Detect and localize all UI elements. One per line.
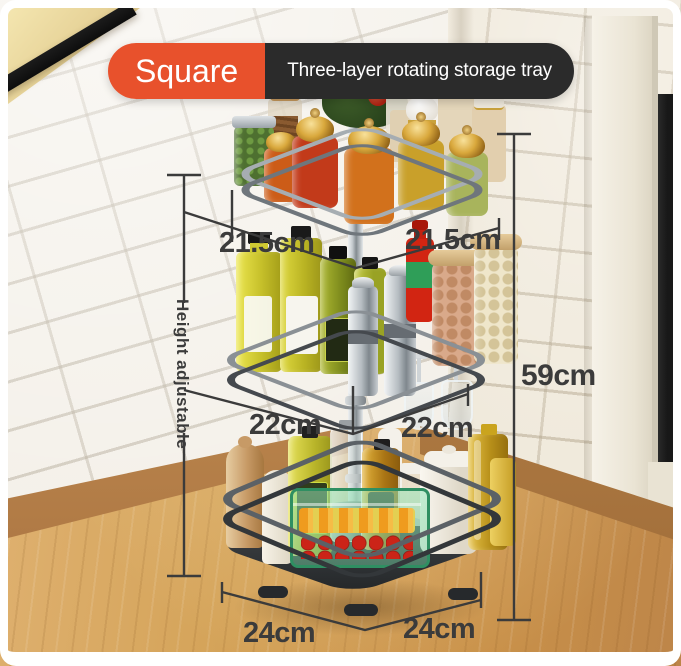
dim-label-total-height: 59cm xyxy=(521,359,596,393)
product-image: 21.5cm 21.5cm 22cm 22cm 24cm 24cm 59cm H… xyxy=(0,0,681,666)
dim-label-top-left: 21.5cm xyxy=(219,227,314,260)
badge-title: Three-layer rotating storage tray xyxy=(265,43,574,99)
dim-label-middle-right: 22cm xyxy=(401,412,473,445)
height-adjustable-label: Height adjustable xyxy=(172,299,192,449)
product-badge: Square Three-layer rotating storage tray xyxy=(108,43,574,99)
dim-label-base-right: 24cm xyxy=(403,613,475,646)
dim-label-base-left: 24cm xyxy=(243,617,315,650)
dim-label-middle-left: 22cm xyxy=(249,409,321,442)
badge-category: Square xyxy=(108,43,265,99)
dimension-lines xyxy=(0,0,681,666)
dim-label-top-right: 21.5cm xyxy=(405,224,500,257)
